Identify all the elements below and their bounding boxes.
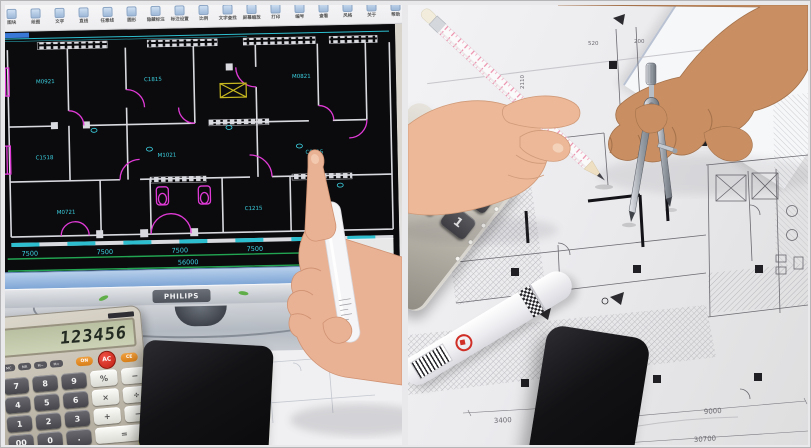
svg-text:3400: 3400 xyxy=(494,416,512,425)
calculator-key: MC xyxy=(5,364,15,372)
toolbar-item: 隐藏标注 xyxy=(144,6,166,23)
toolbar-item: 风格 xyxy=(336,5,358,19)
toolbar-icon xyxy=(318,5,328,13)
calculator: 123456 MC MR M− M+ ON AC CE 7 8 9 % − 4 … xyxy=(5,305,153,445)
toolbar-item: 编号 xyxy=(288,5,310,20)
calculator-key-ac: AC xyxy=(97,350,117,370)
calculator-key: M− xyxy=(34,361,48,369)
calculator-key: 00 xyxy=(8,434,34,445)
toolbar-item: 打印 xyxy=(264,5,286,21)
svg-text:M0721: M0721 xyxy=(57,210,76,216)
svg-text:C1215: C1215 xyxy=(245,206,263,212)
svg-text:2110: 2110 xyxy=(520,75,526,89)
svg-text:命令:: 命令: xyxy=(336,253,350,261)
svg-text:M0821: M0821 xyxy=(292,74,311,80)
toolbar-icon xyxy=(222,5,232,15)
toolbar-item: 圆形 xyxy=(120,6,142,23)
toolbar-icon xyxy=(102,7,112,17)
calculator-key: 5 xyxy=(34,393,60,411)
toolbar-icon xyxy=(270,5,280,14)
red-circle-logo xyxy=(452,331,475,354)
dimension-label: 7500 xyxy=(246,245,263,253)
toolbar-icon xyxy=(30,8,40,18)
toolbar-item: 关于 xyxy=(360,5,382,19)
toolbar-icon xyxy=(246,5,256,14)
toolbar-item: 直线 xyxy=(72,7,94,24)
leaf-decal xyxy=(238,290,249,296)
command-bar: 命令: xyxy=(331,238,394,265)
toolbar-icon xyxy=(294,5,304,13)
display-digits: 123456 xyxy=(59,322,127,348)
calculator-key: 4 xyxy=(408,180,446,217)
toolbar-icon xyxy=(150,6,160,16)
svg-text:M1021: M1021 xyxy=(158,153,177,159)
svg-text:C1815: C1815 xyxy=(144,77,162,83)
toolbar-item: 图块 xyxy=(5,9,23,26)
calculator-key: 0 xyxy=(37,431,63,445)
cad-floor-plan: M0921 C1815 M0821 C1518 M1021 C0915 M072… xyxy=(5,24,400,272)
calculator-key: × xyxy=(91,388,119,406)
toolbar-icon xyxy=(6,9,16,19)
svg-text:M0921: M0921 xyxy=(36,79,55,85)
dimension-label: 7500 xyxy=(22,249,39,257)
calculator-key: 4 xyxy=(5,396,31,414)
toolbar-icon xyxy=(342,5,352,12)
svg-text:C0915: C0915 xyxy=(305,149,323,155)
toolbar-item: 查看 xyxy=(312,5,334,20)
toolbar-item: 帮助 xyxy=(384,5,402,18)
svg-text:C1518: C1518 xyxy=(36,155,54,161)
leaf-decal xyxy=(98,295,109,302)
toolbar-icon xyxy=(54,8,64,18)
calculator-key: 0 xyxy=(429,154,467,191)
dimension-label: 7500 xyxy=(313,243,330,251)
calculator-key: CE xyxy=(120,352,138,362)
svg-text:30700: 30700 xyxy=(694,434,717,444)
philips-logo: PHILIPS xyxy=(152,289,210,303)
toolbar-item: 绘图 xyxy=(24,8,46,25)
calculator-key: 3 xyxy=(64,410,90,428)
toolbar-icon xyxy=(174,5,184,15)
photo-collage: 图块 绘图 文字 直线 任意线 圆形 隐藏标注 标注设置 比例 文字查找 屏幕缩… xyxy=(0,0,811,448)
toolbar-item: 文字查找 xyxy=(216,5,238,22)
toolbar-item: 比例 xyxy=(192,5,214,22)
selection-highlight xyxy=(5,33,29,39)
calculator-key: 8 xyxy=(32,374,58,392)
right-photo: 3400 9000 30700 520 200 2110 0 0 4 1 xyxy=(408,5,808,445)
smartphone xyxy=(138,340,274,445)
calculator-key: 1 xyxy=(6,415,32,433)
toolbar-item: 文字 xyxy=(48,8,70,25)
calculator-key: M+ xyxy=(50,360,64,368)
calculator-key: 6 xyxy=(63,391,89,409)
svg-text:520: 520 xyxy=(588,41,599,47)
calculator-key: 2 xyxy=(35,412,61,430)
toolbar-icon xyxy=(366,5,376,12)
toolbar-icon xyxy=(126,6,136,16)
cad-monitor: 图块 绘图 文字 直线 任意线 圆形 隐藏标注 标注设置 比例 文字查找 屏幕缩… xyxy=(5,5,402,356)
toolbar-icon xyxy=(390,5,400,11)
toolbar-item: 标注设置 xyxy=(168,5,190,22)
toolbar-item: 屏幕缩放 xyxy=(240,5,262,21)
calculator-key: 9 xyxy=(61,372,87,390)
calculator-key: + xyxy=(93,407,121,425)
left-photo: 图块 绘图 文字 直线 任意线 圆形 隐藏标注 标注设置 比例 文字查找 屏幕缩… xyxy=(5,5,402,445)
calculator-key: . xyxy=(66,429,92,445)
dimension-label: 7500 xyxy=(171,246,188,254)
total-dimension-label: 56000 xyxy=(178,258,199,266)
toolbar-icon xyxy=(198,5,208,15)
calculator-key: % xyxy=(90,369,118,387)
toolbar-icon xyxy=(78,7,88,17)
calculator-key: MR xyxy=(18,363,32,371)
calculator-keypad: 7 8 9 % − 4 5 6 × ÷ 1 2 3 + − 00 0 . = xyxy=(5,367,145,445)
toolbar-item: 任意线 xyxy=(96,7,118,24)
svg-text:9000: 9000 xyxy=(704,407,722,416)
calculator-key: ON xyxy=(76,356,94,366)
dimension-label: 7500 xyxy=(96,248,113,256)
svg-text:200: 200 xyxy=(634,39,645,45)
calculator-key: 7 xyxy=(5,377,29,395)
thick-wall-segments xyxy=(526,189,668,247)
